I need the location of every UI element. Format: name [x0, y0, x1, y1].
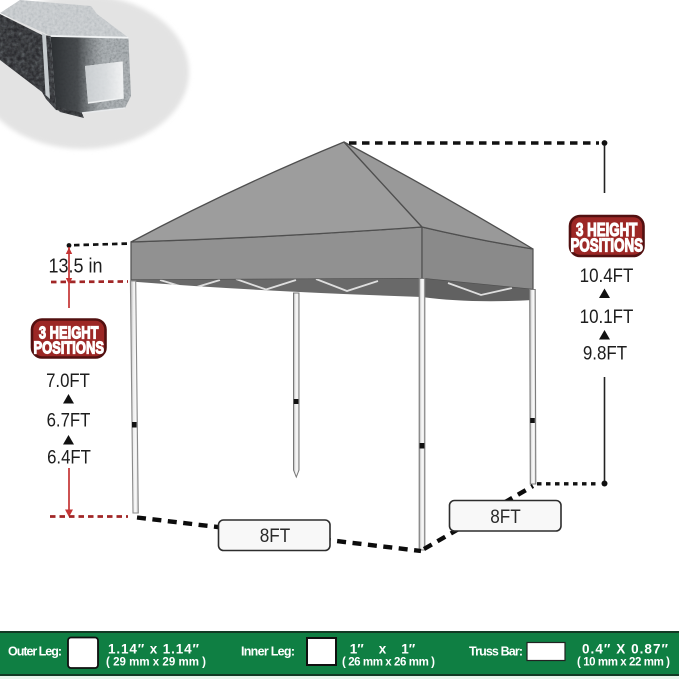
svg-text:10.4FT: 10.4FT	[580, 264, 634, 286]
svg-text:1″ x 1″: 1″ x 1″	[350, 642, 416, 657]
svg-text:8FT: 8FT	[260, 524, 290, 546]
svg-text:( 26 mm x 26 mm ): ( 26 mm x 26 mm )	[342, 657, 435, 669]
svg-text:1.14″ x 1.14″: 1.14″ x 1.14″	[108, 642, 200, 657]
svg-text:( 10 mm x 22 mm ): ( 10 mm x 22 mm )	[577, 657, 670, 669]
svg-text:9.8FT: 9.8FT	[583, 341, 627, 363]
svg-text:6.7FT: 6.7FT	[47, 409, 91, 430]
svg-text:Inner Leg:: Inner Leg:	[241, 645, 295, 659]
svg-text:Outer Leg:: Outer Leg:	[8, 645, 62, 659]
svg-text:10.1FT: 10.1FT	[580, 305, 634, 327]
svg-text:13.5 in: 13.5 in	[48, 256, 102, 278]
svg-text:( 29 mm x 29 mm ): ( 29 mm x 29 mm )	[106, 657, 206, 669]
svg-text:POSITIONS: POSITIONS	[33, 339, 104, 359]
svg-text:7.0FT: 7.0FT	[46, 370, 90, 391]
svg-text:POSITIONS: POSITIONS	[570, 235, 643, 256]
svg-text:6.4FT: 6.4FT	[47, 446, 91, 467]
svg-text:Truss Bar:: Truss Bar:	[469, 645, 523, 659]
svg-text:8FT: 8FT	[490, 505, 520, 527]
